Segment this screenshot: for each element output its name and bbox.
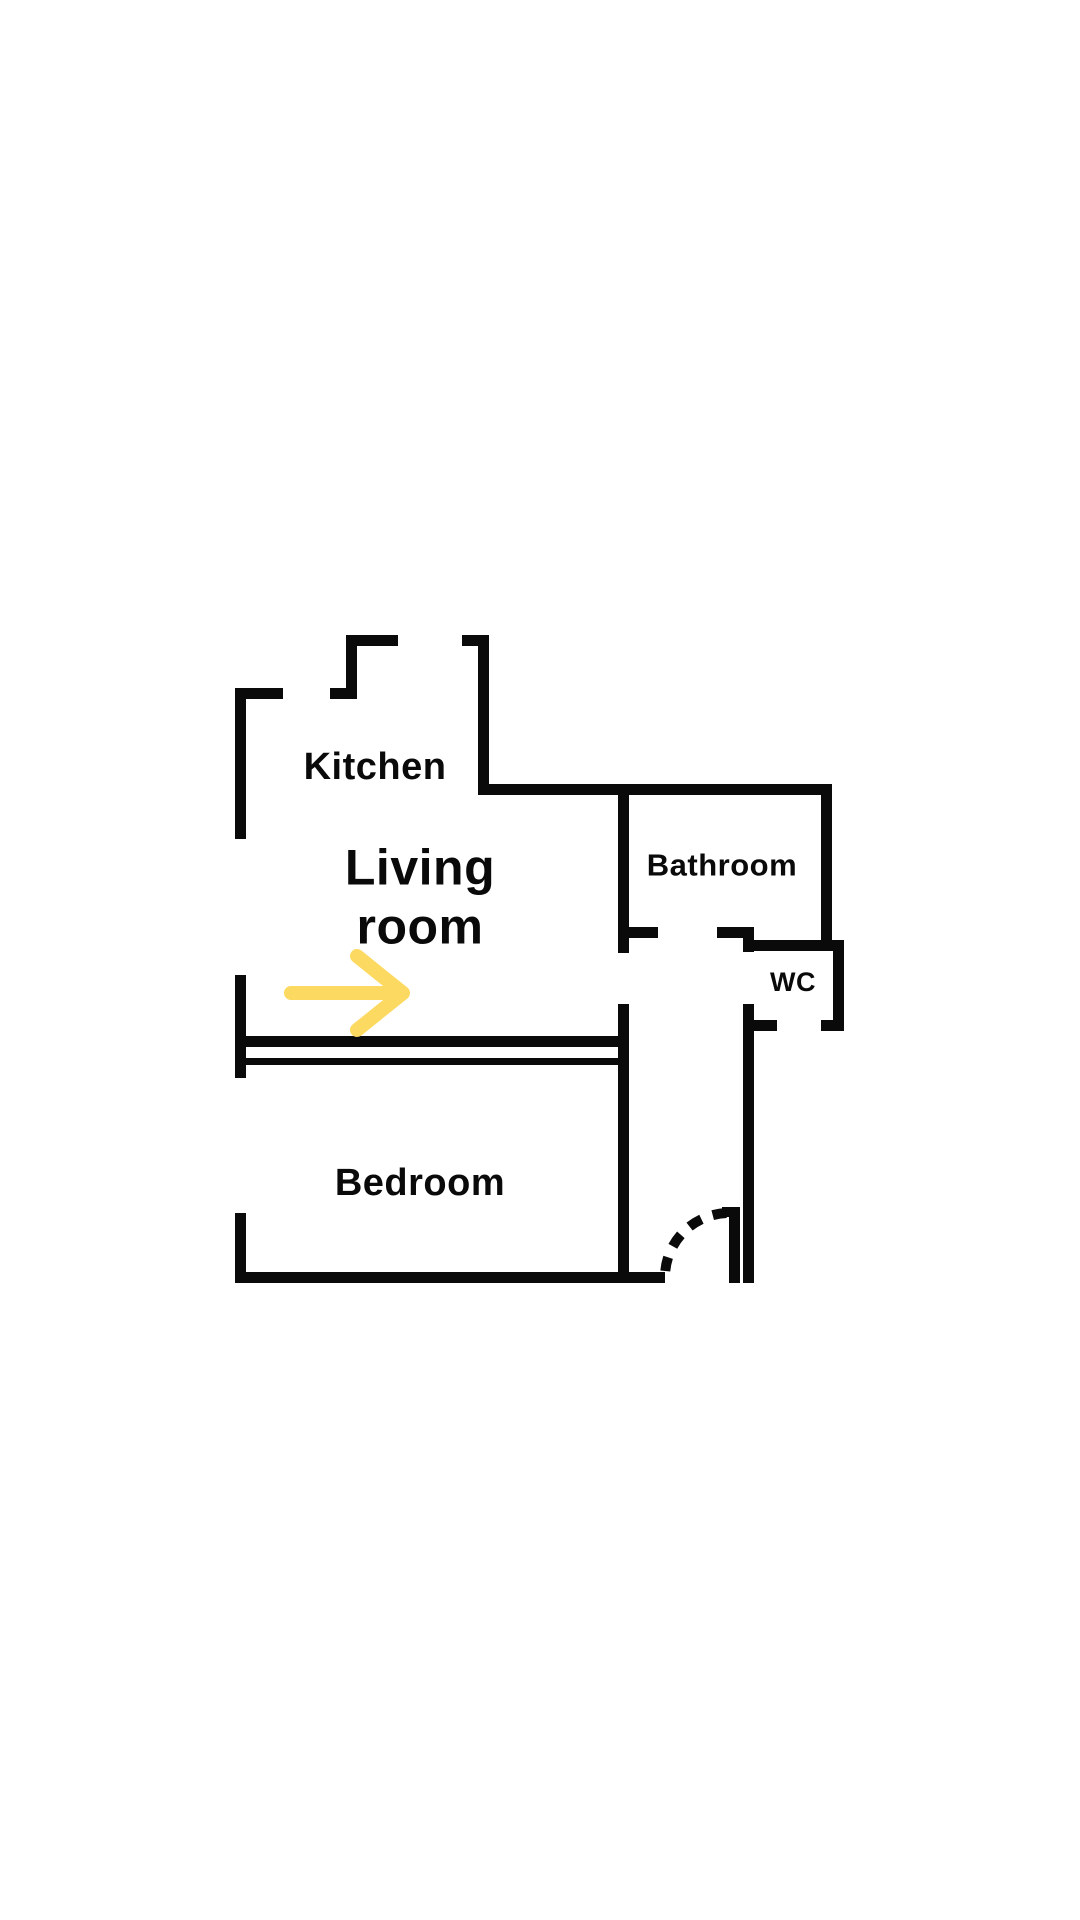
bathroom-left-wall: [618, 795, 629, 953]
living-left-wall: [235, 975, 246, 1078]
bedroom-door-swing-arc: [665, 1213, 729, 1277]
screen: KitchenLivingroomBathroomWCBedroom: [0, 0, 1080, 1920]
room-label-bedroom: Bedroom: [335, 1162, 505, 1204]
room-label-kitchen: Kitchen: [304, 746, 447, 788]
room-label-bathroom: Bathroom: [647, 848, 797, 883]
floorplan-svg: KitchenLivingroomBathroomWCBedroom: [0, 0, 1080, 1920]
kitchen-right-wall: [478, 635, 489, 795]
walls-layer: [235, 635, 844, 1283]
bathroom-bottom-wall-left: [629, 927, 658, 938]
kitchen-top-wall-left: [235, 688, 283, 699]
bathroom-right-wall: [821, 784, 832, 941]
wc-left-jamb: [743, 938, 754, 952]
bedroom-right-wall: [618, 1004, 629, 1283]
wc-bottom-wall-right: [821, 1020, 844, 1031]
room-label-living-room-line2: room: [357, 899, 484, 955]
bedroom-door-jamb: [729, 1207, 740, 1283]
wc-right-wall: [833, 940, 844, 1031]
bathroom-bottom-wall-right: [717, 927, 754, 938]
room-label-living-room-line1: Living: [345, 840, 495, 896]
kitchen-chimney-top-wall: [346, 635, 398, 646]
living-bathroom-top-wall: [478, 784, 832, 795]
bedroom-bottom-wall: [235, 1272, 665, 1283]
arrow-layer: [291, 956, 403, 1030]
room-label-wc: WC: [770, 967, 816, 997]
hallway-right-wall: [743, 1004, 754, 1283]
wc-top-wall: [743, 940, 844, 951]
door-layer: [665, 1213, 729, 1277]
living-bedroom-wall-lower: [245, 1058, 618, 1065]
living-bedroom-wall-upper: [245, 1036, 618, 1047]
wc-bottom-wall-left: [754, 1020, 777, 1031]
kitchen-left-wall: [235, 688, 246, 839]
